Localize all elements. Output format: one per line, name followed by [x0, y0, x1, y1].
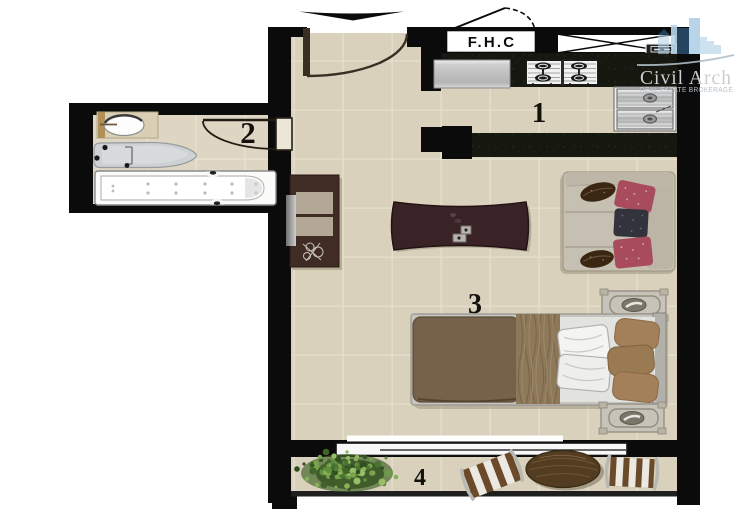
- svg-text:1: 1: [532, 97, 547, 129]
- svg-text:2: 2: [240, 115, 256, 150]
- svg-text:REAL ESTATE BROKERAGE: REAL ESTATE BROKERAGE: [640, 85, 733, 94]
- svg-text:4: 4: [414, 465, 426, 491]
- svg-text:F.H.C: F.H.C: [468, 34, 517, 51]
